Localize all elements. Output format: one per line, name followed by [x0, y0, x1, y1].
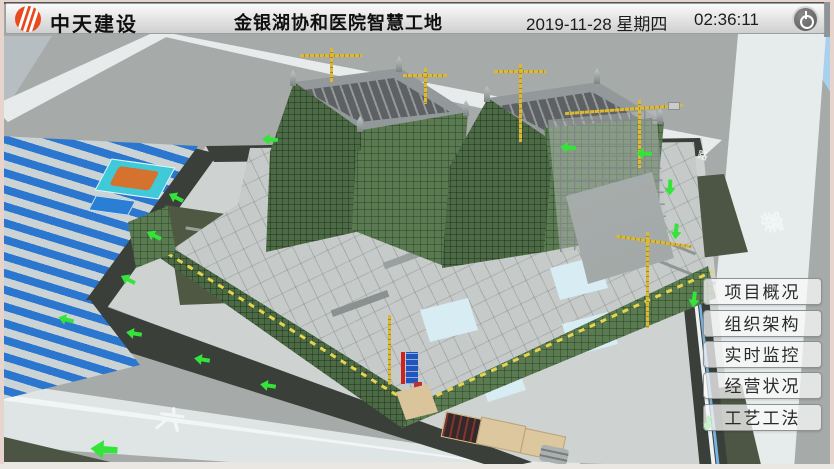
menu-realtime-monitor[interactable]: 实时监控 — [703, 341, 822, 368]
frame-edge-bottom — [0, 464, 834, 469]
road-label-right-small: 路 — [696, 146, 709, 163]
frame-edge-right — [830, 0, 834, 469]
hoist-frame-red — [401, 352, 405, 384]
basketball-court-inner — [109, 166, 159, 191]
tower-crane — [646, 232, 649, 328]
company-name: 中天建设 — [50, 8, 138, 37]
tower-crane — [638, 100, 641, 168]
company-logo-icon — [15, 6, 41, 32]
frame-edge-top — [0, 0, 834, 2]
dashboard-root: 六 寨 路 项目概况 组织架构 实时监控 经营状况 工艺工法 中天建设 金银湖协… — [0, 0, 834, 469]
hoist-mast — [388, 315, 391, 385]
power-icon — [800, 15, 814, 29]
menu-business-status[interactable]: 经营状况 — [703, 372, 822, 399]
page-title: 金银湖协和医院智慧工地 — [234, 9, 443, 35]
crane-cab — [668, 102, 680, 110]
tower-crane-jib — [403, 74, 447, 77]
header-bar: 中天建设 金银湖协和医院智慧工地 2019-11-28 星期四 02:36:11 — [5, 3, 825, 34]
menu-project-overview[interactable]: 项目概况 — [703, 278, 822, 305]
hoist-cage-blue — [406, 352, 418, 384]
header-time: 02:36:11 — [694, 10, 759, 30]
tower-crane-jib — [494, 70, 546, 73]
tower-crane — [519, 64, 522, 142]
corner-turret — [592, 68, 602, 84]
tower-crane-jib — [300, 54, 362, 57]
menu-craft-methods[interactable]: 工艺工法 — [703, 404, 822, 431]
frame-edge-left — [0, 0, 4, 469]
power-button[interactable] — [792, 6, 819, 33]
menu-org-structure[interactable]: 组织架构 — [703, 310, 822, 337]
site-3d-view[interactable]: 六 寨 路 项目概况 组织架构 实时监控 经营状况 工艺工法 — [0, 0, 834, 469]
header-date: 2019-11-28 星期四 — [526, 10, 667, 35]
